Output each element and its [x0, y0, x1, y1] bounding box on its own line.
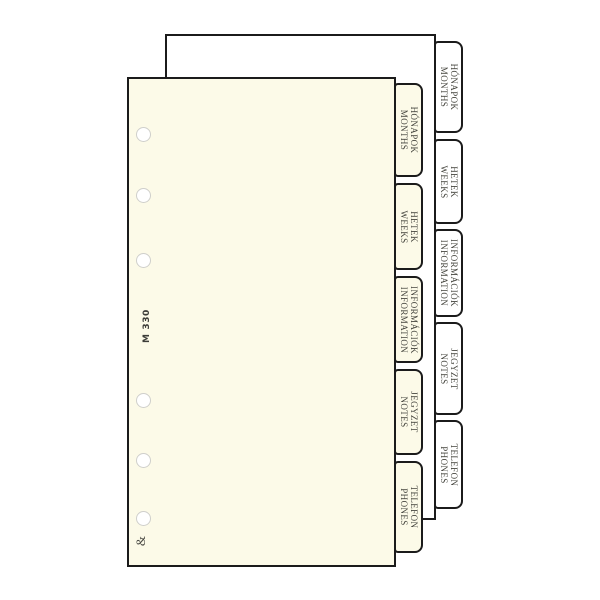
product-code: M 330 [140, 304, 154, 348]
punch-hole [136, 127, 151, 142]
back-tab-months: HÓNAPOK MONTHS [434, 41, 463, 133]
tab-label-en: WEEKS [399, 184, 409, 270]
front-tab-weeks: HETEK WEEKS [394, 183, 423, 270]
back-tab-information: INFORMÁCIÓK INFORMATION [434, 229, 463, 317]
tab-label-hu: HETEK [409, 184, 419, 270]
tab-label-hu: TELEFON [449, 422, 459, 508]
tab-label-hu: JEGYZET [449, 326, 459, 412]
brand-mark-icon: & [133, 533, 149, 549]
tab-label-hu: TELEFON [409, 464, 419, 550]
tab-label-hu: HETEK [449, 139, 459, 225]
back-tab-phones: TELEFON PHONES [434, 420, 463, 509]
tab-label: INFORMÁCIÓK INFORMATION [399, 277, 419, 363]
punch-hole [136, 188, 151, 203]
tab-label: HETEK WEEKS [399, 184, 419, 270]
punch-hole [136, 253, 151, 268]
tab-label-hu: INFORMÁCIÓK [449, 230, 459, 316]
tab-label: HÓNAPOK MONTHS [399, 87, 419, 173]
tab-label-en: NOTES [399, 369, 409, 455]
divider-product-image: HÓNAPOK MONTHS HETEK WEEKS INFORMÁCIÓK I… [0, 0, 600, 600]
tab-label-en: PHONES [439, 422, 449, 508]
tab-label-en: WEEKS [439, 139, 449, 225]
tab-label-en: MONTHS [399, 87, 409, 173]
tab-label: HÓNAPOK MONTHS [439, 44, 459, 130]
tab-label: TELEFON PHONES [399, 464, 419, 550]
tab-label: HETEK WEEKS [439, 139, 459, 225]
tab-label: JEGYZET NOTES [399, 369, 419, 455]
tab-label-hu: INFORMÁCIÓK [409, 277, 419, 363]
front-tab-information: INFORMÁCIÓK INFORMATION [394, 276, 423, 363]
punch-hole [136, 511, 151, 526]
tab-label-hu: JEGYZET [409, 369, 419, 455]
tab-label-en: NOTES [439, 326, 449, 412]
tab-label-hu: HÓNAPOK [409, 87, 419, 173]
front-tab-phones: TELEFON PHONES [394, 461, 423, 553]
front-divider-sheet [127, 77, 396, 567]
tab-label: TELEFON PHONES [439, 422, 459, 508]
back-tab-notes: JEGYZET NOTES [434, 322, 463, 415]
tab-label: INFORMÁCIÓK INFORMATION [439, 230, 459, 316]
tab-label-en: PHONES [399, 464, 409, 550]
front-tab-months: HÓNAPOK MONTHS [394, 83, 423, 177]
tab-label-hu: HÓNAPOK [449, 44, 459, 130]
front-tab-notes: JEGYZET NOTES [394, 369, 423, 455]
punch-hole [136, 393, 151, 408]
punch-hole [136, 453, 151, 468]
back-tab-weeks: HETEK WEEKS [434, 139, 463, 224]
tab-label-en: MONTHS [439, 44, 449, 130]
tab-label: JEGYZET NOTES [439, 326, 459, 412]
tab-label-en: INFORMATION [399, 277, 409, 363]
tab-label-en: INFORMATION [439, 230, 449, 316]
